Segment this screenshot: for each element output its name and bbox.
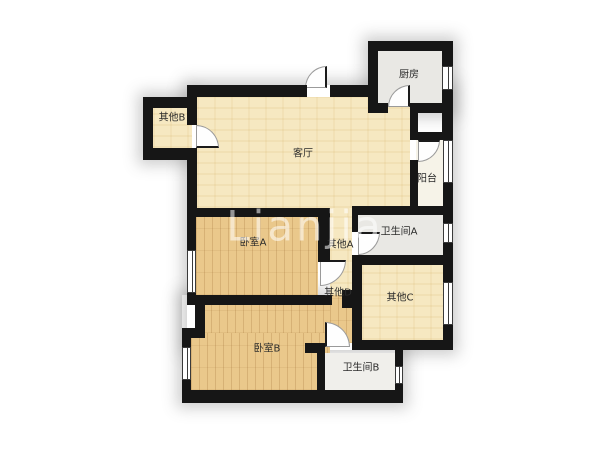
- wall: [187, 85, 197, 108]
- wall: [330, 85, 368, 97]
- window: [443, 282, 453, 325]
- floor-plan: 厨房 客厅 其他B 阳台 卫生间A 其他A 卧室A 其他D 其他C 卧室B 卫生…: [0, 0, 600, 450]
- window: [182, 347, 191, 380]
- wall: [443, 183, 453, 223]
- room-label-other-b: 其他B: [159, 109, 186, 124]
- window: [395, 366, 403, 384]
- wall: [395, 384, 403, 392]
- wall: [182, 328, 205, 338]
- wall: [187, 108, 197, 125]
- room-label-balcony: 阳台: [417, 170, 437, 185]
- wall: [187, 217, 196, 250]
- wall: [317, 353, 325, 390]
- entry-door-arc: [305, 66, 327, 88]
- wall: [410, 132, 453, 140]
- room-label-kitchen: 厨房: [399, 66, 419, 81]
- room-label-bedroom-a: 卧室A: [240, 234, 267, 249]
- wall: [187, 160, 197, 217]
- window: [443, 223, 453, 243]
- room-label-other-d: 其他D: [324, 284, 352, 299]
- wall: [352, 265, 362, 350]
- wall: [353, 340, 453, 350]
- room-label-bathroom-b: 卫生间B: [343, 359, 380, 374]
- wall: [187, 295, 332, 305]
- room-label-living-room: 客厅: [293, 145, 313, 160]
- wall: [395, 350, 403, 366]
- room-label-other-a: 其他A: [327, 236, 354, 251]
- window: [443, 140, 453, 183]
- wall: [352, 206, 453, 215]
- wall: [182, 338, 191, 347]
- wall: [368, 103, 388, 113]
- room-label-bedroom-b: 卧室B: [254, 340, 281, 355]
- window: [187, 250, 196, 293]
- window: [442, 66, 453, 90]
- wall: [352, 215, 358, 232]
- floor-bedroom-a: [196, 217, 318, 295]
- wall: [410, 160, 418, 210]
- wall: [305, 343, 325, 353]
- wall: [187, 208, 330, 217]
- wall: [442, 41, 453, 66]
- floor-bedroom-b: [195, 305, 330, 333]
- wall: [143, 148, 197, 160]
- wall: [368, 41, 453, 51]
- room-label-other-c: 其他C: [387, 289, 414, 304]
- wall: [187, 85, 307, 97]
- wall: [352, 255, 453, 265]
- room-label-bathroom-a: 卫生间A: [381, 223, 418, 238]
- wall: [182, 390, 403, 403]
